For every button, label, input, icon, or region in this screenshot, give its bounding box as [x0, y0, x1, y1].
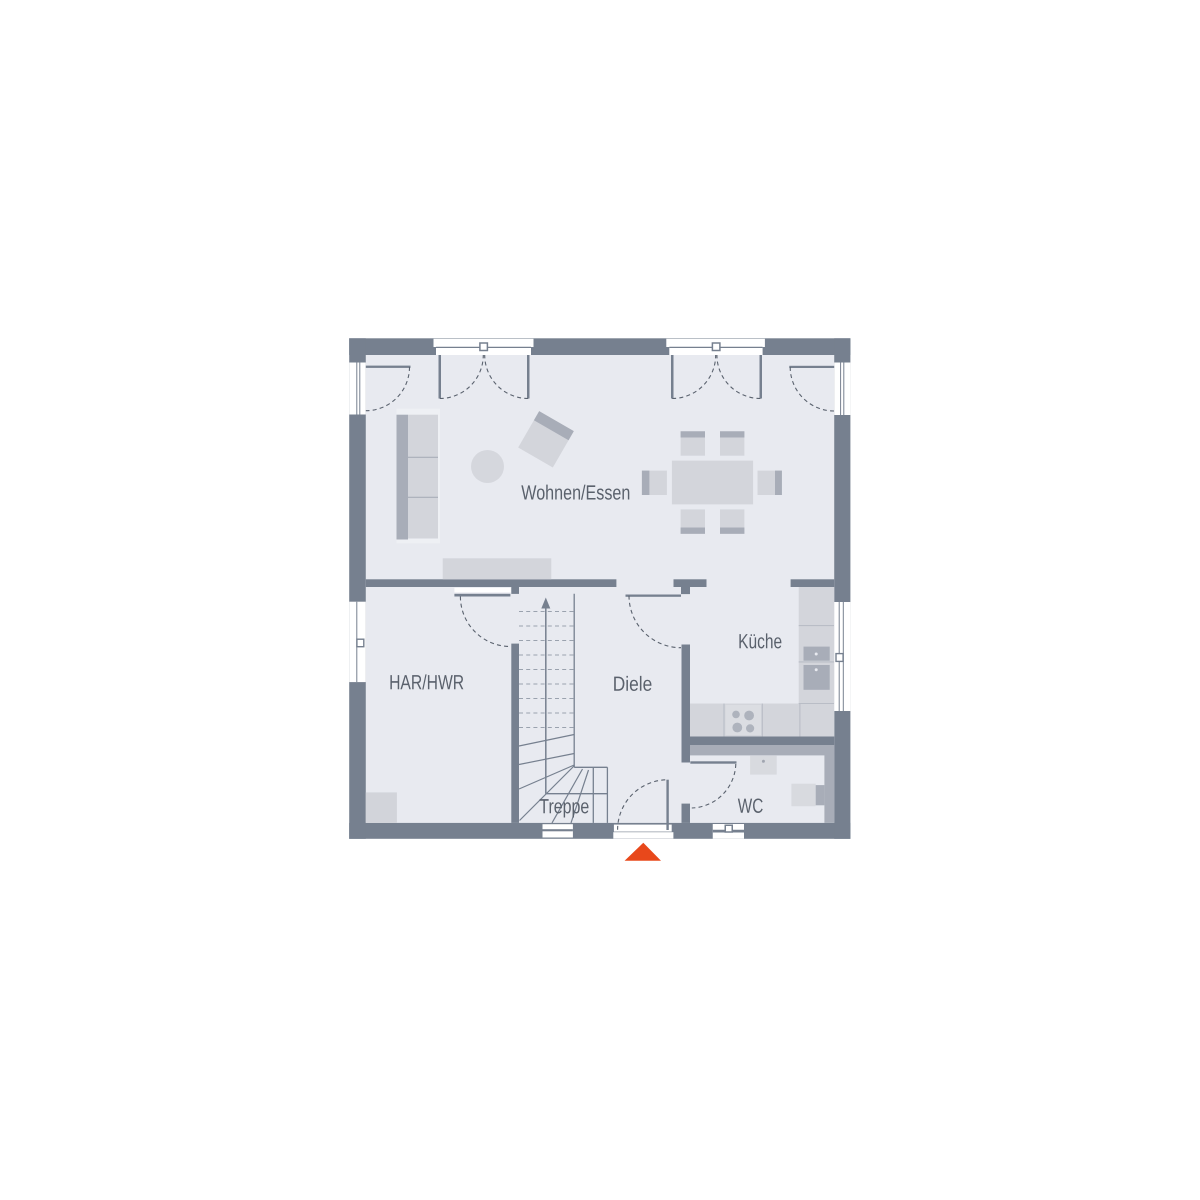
- svg-text:WC: WC: [738, 795, 764, 818]
- svg-text:HAR/HWR: HAR/HWR: [389, 671, 464, 694]
- svg-text:Treppe: Treppe: [539, 795, 589, 818]
- svg-text:Wohnen/Essen: Wohnen/Essen: [521, 481, 630, 504]
- svg-text:Diele: Diele: [613, 673, 653, 696]
- svg-text:Küche: Küche: [738, 630, 782, 653]
